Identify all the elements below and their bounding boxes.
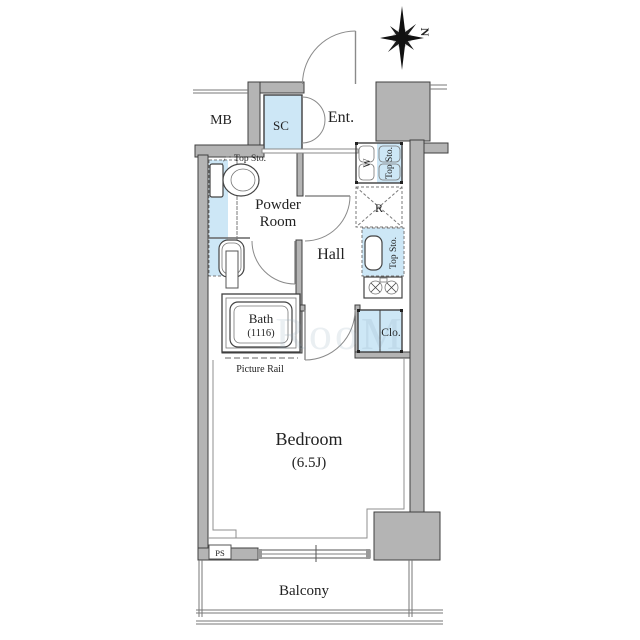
floor-plan: N MB SC Ent. Powder Room Hall Bath (1116… bbox=[0, 0, 640, 640]
stove-top bbox=[364, 277, 402, 298]
corner-dot bbox=[400, 181, 403, 184]
wall-powder-hall-upper bbox=[297, 150, 303, 196]
washer-label: W bbox=[363, 158, 373, 167]
bath-label: Bath bbox=[249, 311, 274, 326]
bath-door-swing bbox=[252, 241, 295, 284]
bedroom-size-label: (6.5J) bbox=[292, 455, 327, 471]
corner-dot bbox=[355, 142, 358, 145]
entry-step-line bbox=[262, 149, 358, 153]
floor-plan-drawing: N MB SC Ent. Powder Room Hall Bath (1116… bbox=[0, 0, 640, 640]
window-end-cap-left bbox=[258, 549, 262, 559]
entrance-door-swing bbox=[303, 31, 356, 84]
corner-dot bbox=[400, 142, 403, 145]
shoe-closet-door-upper bbox=[302, 97, 325, 120]
shoe-closet-label: SC bbox=[273, 118, 289, 133]
wall-left bbox=[198, 155, 208, 550]
wall-entry-left bbox=[248, 82, 260, 150]
hall-label: Hall bbox=[317, 246, 345, 263]
corner-dot bbox=[355, 181, 358, 184]
vestibule-shelf bbox=[226, 251, 238, 288]
compass-north-label: N bbox=[418, 28, 432, 37]
entrance-label: Ent. bbox=[328, 109, 354, 126]
wall-column-bottom-right bbox=[374, 512, 440, 560]
wall-right bbox=[410, 140, 424, 514]
bedroom-label: Bedroom bbox=[276, 429, 343, 449]
powder-room-label-1: Powder bbox=[255, 197, 301, 213]
compass-main-star bbox=[380, 6, 424, 70]
mb-label: MB bbox=[210, 113, 232, 128]
toilet-tank bbox=[210, 164, 223, 197]
shoe-closet-door-lower bbox=[302, 120, 325, 143]
stove-icon bbox=[364, 277, 402, 298]
pipe-space-label: PS bbox=[215, 548, 225, 558]
powder-door-swing bbox=[305, 196, 350, 241]
watermark: RooM bbox=[275, 308, 405, 359]
compass-icon: N bbox=[376, 6, 432, 70]
wall-column-top-right bbox=[376, 82, 430, 141]
top-storage-washer-label: Top Sto. bbox=[385, 147, 395, 179]
wall-right-stub bbox=[424, 143, 448, 153]
top-storage-kitchen-label: Top Sto. bbox=[389, 237, 399, 269]
refrigerator-label: R bbox=[375, 201, 383, 215]
sink-basin bbox=[365, 236, 382, 270]
powder-room-label-2: Room bbox=[260, 214, 297, 230]
picture-rail-label: Picture Rail bbox=[236, 364, 284, 375]
top-storage-toilet-label: Top Sto. bbox=[234, 154, 266, 164]
window-end-cap-right bbox=[366, 549, 370, 559]
bath-size-label: (1116) bbox=[247, 328, 275, 339]
balcony-label: Balcony bbox=[279, 583, 329, 599]
